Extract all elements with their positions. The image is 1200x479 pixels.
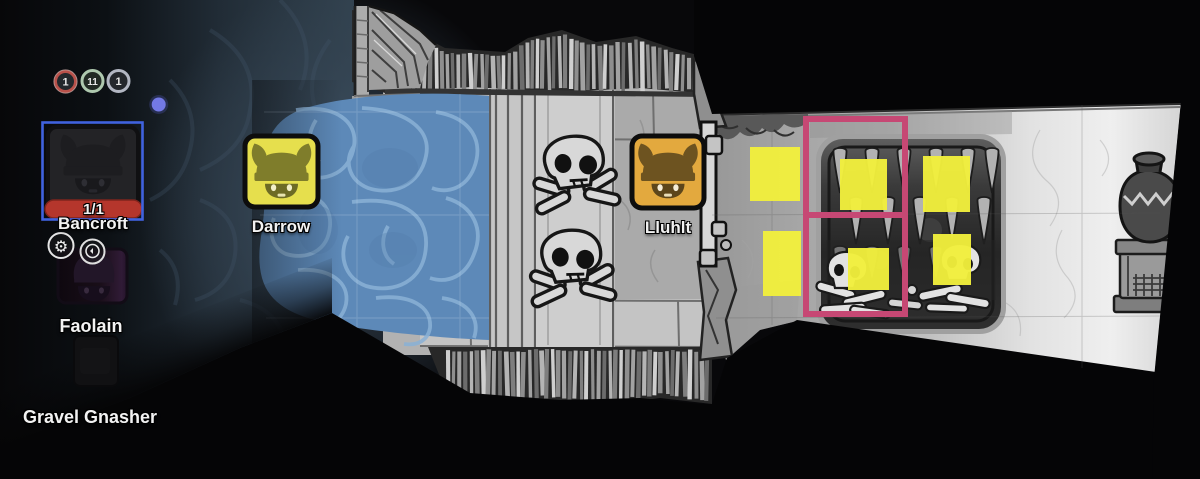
svg-text:11: 11 bbox=[87, 77, 98, 88]
svg-text:1: 1 bbox=[62, 77, 68, 89]
svg-text:⚙: ⚙ bbox=[54, 239, 68, 256]
svg-text:1: 1 bbox=[115, 76, 121, 88]
